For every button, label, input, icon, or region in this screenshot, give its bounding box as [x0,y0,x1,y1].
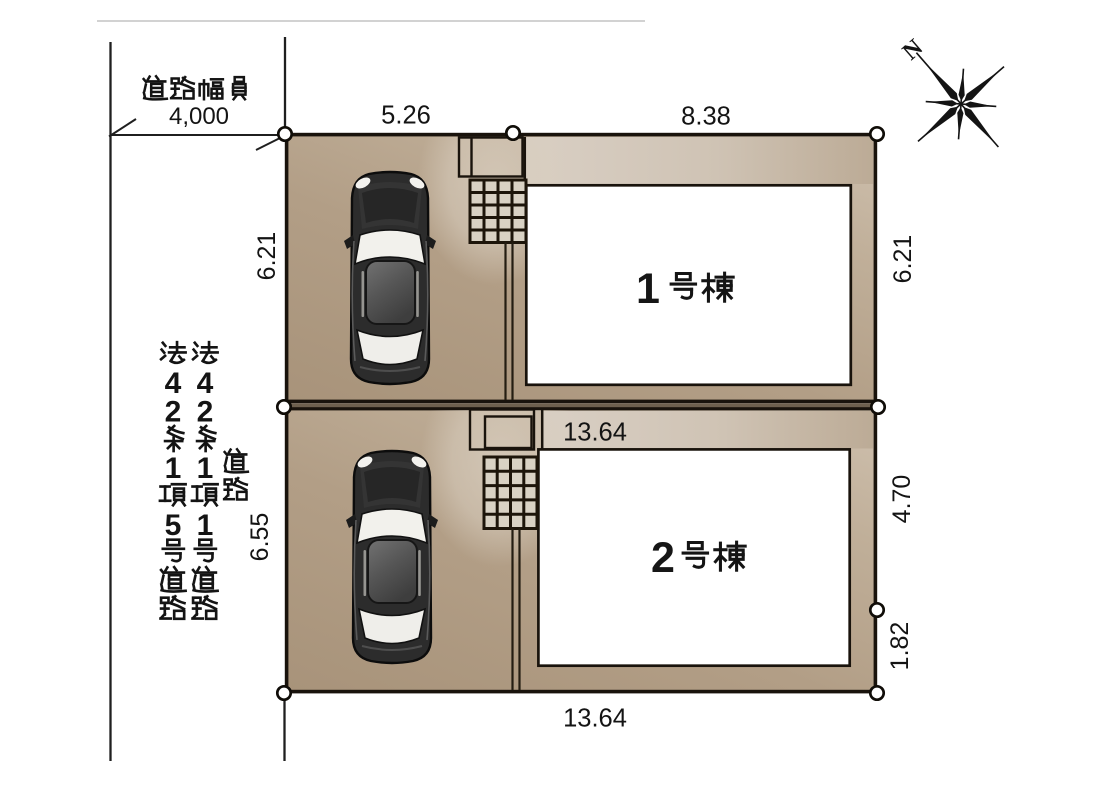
svg-text:2: 2 [651,534,675,582]
svg-text:1: 1 [165,452,182,485]
svg-text:2: 2 [165,396,182,429]
svg-text:1.82: 1.82 [886,622,914,671]
svg-text:13.64: 13.64 [563,705,627,733]
svg-text:5.26: 5.26 [381,102,431,130]
svg-text:6.21: 6.21 [253,232,281,281]
svg-text:8.38: 8.38 [681,103,731,131]
svg-text:1: 1 [197,452,214,485]
svg-text:6.21: 6.21 [889,235,917,284]
svg-text:4,000: 4,000 [169,103,229,130]
svg-text:5: 5 [165,509,182,542]
svg-text:2: 2 [197,396,214,429]
svg-text:6.55: 6.55 [246,513,274,562]
svg-text:4.70: 4.70 [888,475,916,524]
svg-text:1: 1 [636,265,660,313]
svg-text:1: 1 [197,509,214,542]
svg-text:13.64: 13.64 [563,419,627,447]
